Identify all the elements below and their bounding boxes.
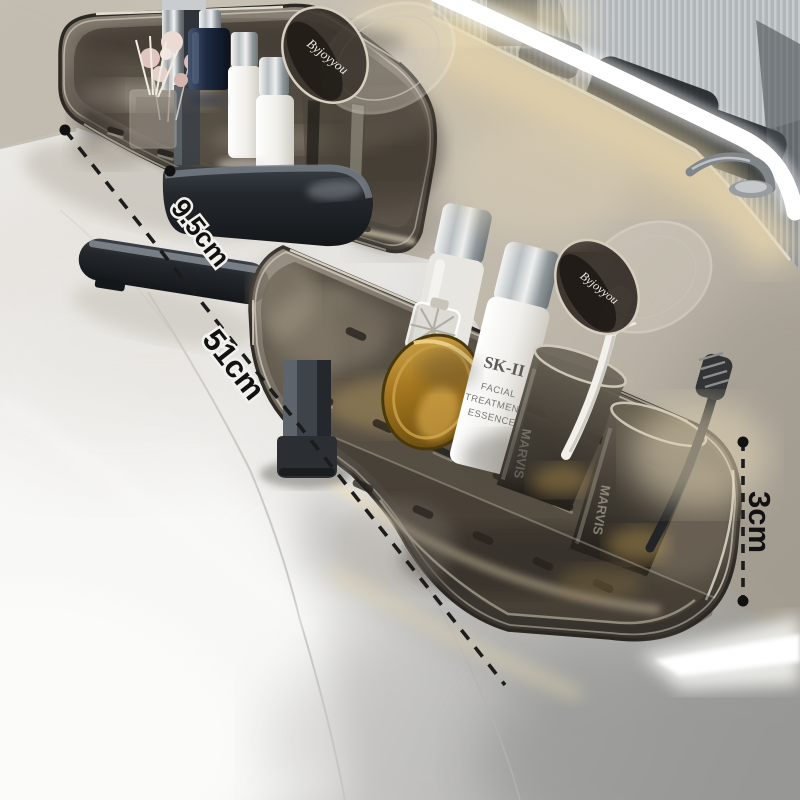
svg-text:3cm: 3cm <box>742 491 777 553</box>
